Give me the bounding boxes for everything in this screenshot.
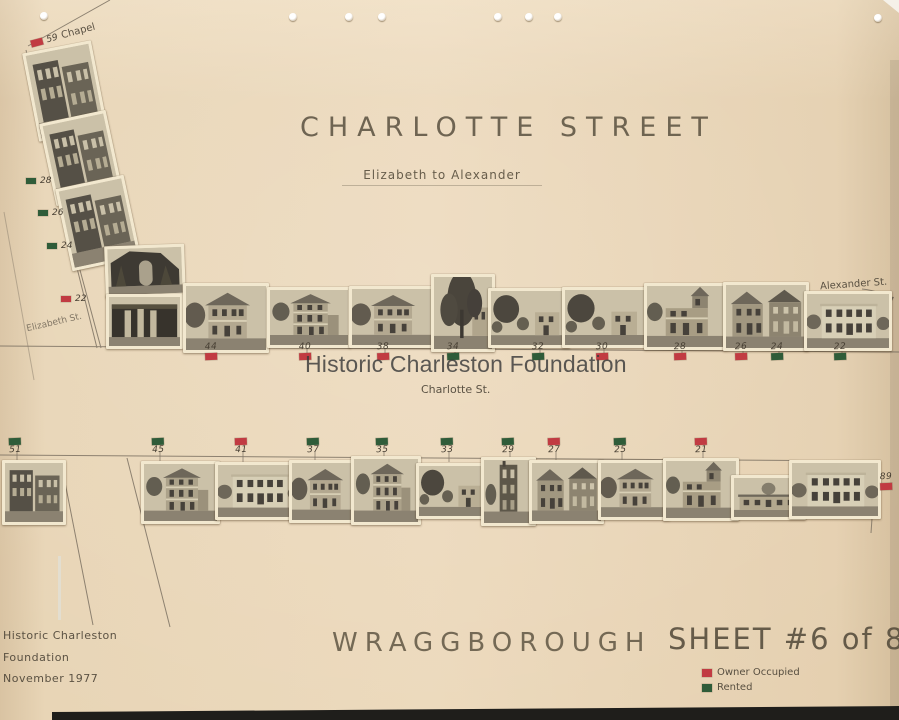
house-photo-37 [289,460,359,523]
rented-swatch [834,353,846,360]
rented-swatch [38,210,48,216]
address-number: 22 [75,294,86,304]
pin-hole [378,13,386,21]
address-number: 25 [614,446,627,455]
address-marker: 35 [376,438,389,455]
address-marker: 22 [61,294,86,304]
footer-org-line3: November 1977 [3,672,98,685]
house-photo-21 [663,458,739,521]
address-number: 27 [548,446,561,455]
address-number: 44 [205,343,218,352]
page-title: CHARLOTTE STREET [300,112,680,143]
house-photo-22 [804,291,892,351]
house-photo-35 [351,456,421,525]
address-marker: 28 [674,343,687,360]
address-number: 21 [695,446,708,455]
church-photo [106,294,183,349]
page-subtitle: Elizabeth to Alexander [342,168,542,186]
address-marker: 51 [9,438,22,455]
pin-hole [289,13,297,21]
address-number: 29 [502,446,515,455]
pin-hole [874,14,882,22]
charlotte-street-south-line [0,455,878,461]
pin-hole [494,13,502,21]
legend-label: Owner Occupied [717,667,800,678]
pin-hole [554,13,562,21]
rented-swatch [702,684,712,692]
house-photo-30 [562,287,648,348]
address-number: 28 [40,176,51,186]
house-photo-38 [349,286,434,348]
address-number: 22 [834,343,847,352]
legend-label: Rented [717,682,752,693]
address-marker: 24 [47,241,72,251]
owner-swatch [880,483,892,490]
footer-org-line1: Historic Charleston [3,629,117,642]
address-number: 26 [52,208,63,218]
house-photo-89 [789,460,881,519]
pin-hole [525,13,533,21]
neighborhood-title: WRAGGBOROUGH [332,628,651,658]
rented-swatch [26,178,36,184]
address-marker: 24 [771,343,784,360]
owner-swatch [205,353,217,360]
address-marker: 27 [548,438,561,455]
house-photo-33 [416,463,490,519]
owner-swatch [674,353,686,360]
address-marker: 26 [735,343,748,360]
charlotte-street-caption: Charlotte St. [421,383,490,396]
owner-swatch [30,38,43,48]
status-legend: Owner OccupiedRented [702,667,800,697]
address-marker: 45 [152,438,165,455]
address-number: 35 [376,446,389,455]
address-marker: 44 [205,343,218,360]
address-number: 51 [9,446,22,455]
rented-swatch [771,353,783,360]
house-photo-32 [488,288,570,348]
address-number: 37 [307,446,320,455]
house-photo-25 [598,460,670,520]
address-number: 33 [441,446,454,455]
address-marker: 41 [235,438,248,455]
address-marker: 37 [307,438,320,455]
address-marker: 28 [26,176,51,186]
address-number: 26 [735,343,748,352]
owner-swatch [735,353,747,360]
church-photo [104,244,186,299]
house-photo-51 [2,460,66,525]
scan-edge-bottom [52,706,899,720]
house-photo-28 [644,283,728,350]
address-marker: 89 [880,473,893,490]
address-marker: 33 [441,438,454,455]
scratch-artifact [58,556,61,620]
pin-hole [345,13,353,21]
address-marker: 25 [614,438,627,455]
address-marker: 26 [38,208,63,218]
house-photo-45 [141,461,220,524]
address-marker: 22 [834,343,847,360]
survey-sheet-scan: CHARLOTTE STREET Elizabeth to Alexander … [0,0,899,720]
address-number: 89 [880,473,893,482]
legend-row: Owner Occupied [702,667,800,678]
house-photo-26-24 [723,282,809,351]
legend-row: Rented [702,682,800,693]
owner-swatch [702,669,712,677]
house-photo-40 [267,287,351,348]
paper-corner-fold [883,0,899,13]
address-number: 28 [674,343,687,352]
house-photo-34 [431,274,495,352]
address-number: 24 [771,343,784,352]
address-marker: 29 [502,438,515,455]
address-marker: 21 [695,438,708,455]
owner-swatch [61,296,71,302]
house-photo-44 [183,283,269,353]
house-photo-27 [529,460,604,524]
pin-hole [40,12,48,20]
sheet-number: SHEET #6 of 8 [668,622,899,656]
footer-org-line2: Foundation [3,651,69,664]
house-photo-29 [481,457,536,526]
foundation-watermark: Historic Charleston Foundation [305,351,627,378]
address-number: 45 [152,446,165,455]
address-number: 41 [235,446,248,455]
rented-swatch [47,243,57,249]
address-number: 24 [61,241,72,251]
